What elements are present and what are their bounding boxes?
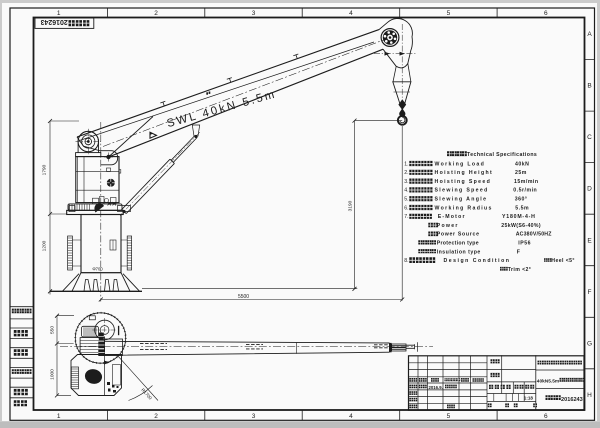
svg-text:3190: 3190 [348,200,354,211]
svg-text:1:18: 1:18 [524,395,534,400]
svg-text:4: 4 [349,10,353,17]
svg-text:2016243: 2016243 [40,18,67,25]
svg-text:8.: 8. [404,258,408,264]
svg-text:2016243: 2016243 [561,397,583,403]
svg-text:5: 5 [447,413,451,420]
svg-text:25m: 25m [515,170,527,176]
svg-text:4: 4 [349,413,353,420]
svg-text:Insulation type: Insulation type [437,249,481,255]
svg-text:E: E [587,237,592,244]
svg-text:Hoisting Height: Hoisting Height [435,170,494,176]
svg-text:Y180M-4-H: Y180M-4-H [502,214,536,220]
svg-text:B: B [587,83,591,90]
svg-text:F: F [517,249,520,255]
svg-text:5.: 5. [404,197,408,203]
svg-text:H: H [587,392,592,399]
svg-text:Slewing Angle: Slewing Angle [435,197,488,203]
svg-text:1.: 1. [404,161,408,167]
svg-text:Trim <2°: Trim <2° [508,267,532,273]
svg-text:Heel <5°: Heel <5° [551,258,575,264]
svg-text:Power: Power [437,223,459,229]
svg-text:4.: 4. [404,188,408,194]
svg-text:IP56: IP56 [518,241,531,247]
svg-text:1: 1 [57,413,61,420]
svg-text:1: 1 [57,10,61,17]
svg-text:3: 3 [252,413,256,420]
svg-text:Slewing Speed: Slewing Speed [435,188,489,194]
svg-text:40kN: 40kN [515,161,529,167]
svg-text:D: D [587,186,592,193]
svg-text:2016.9.: 2016.9. [429,385,443,390]
svg-text:3: 3 [252,10,256,17]
svg-text:Protection type: Protection type [437,241,479,247]
svg-text:1790: 1790 [42,164,48,175]
svg-text:5: 5 [447,10,451,17]
svg-text:2: 2 [154,413,158,420]
svg-text:3.: 3. [404,179,408,185]
svg-text:Design Condition: Design Condition [444,258,511,264]
svg-text:7.: 7. [404,214,408,220]
svg-text:25kW(S6-40%): 25kW(S6-40%) [501,223,541,229]
svg-text:5.5m: 5.5m [515,205,529,211]
svg-text:Power Source: Power Source [437,232,480,238]
svg-text:1200: 1200 [42,240,48,251]
svg-text:G: G [587,340,592,347]
svg-text:6: 6 [544,413,548,420]
svg-text:F: F [588,289,592,296]
svg-text:Technical Specifications: Technical Specifications [467,152,537,158]
svg-text:2.: 2. [404,170,408,176]
svg-text:6.: 6. [404,205,408,211]
svg-text:15m/min: 15m/min [514,179,539,185]
svg-text:Φ700: Φ700 [92,267,103,272]
svg-text:1000: 1000 [50,369,56,380]
svg-text:5500: 5500 [238,294,249,300]
svg-text:40kN5.5m: 40kN5.5m [537,378,559,384]
svg-text:550: 550 [50,326,56,334]
svg-text:Hoisting Speed: Hoisting Speed [435,179,492,185]
svg-text:0.5r/min: 0.5r/min [513,188,537,194]
svg-text:C: C [587,134,592,141]
svg-text:A: A [587,31,592,38]
svg-text:360°: 360° [515,197,528,203]
svg-text:6: 6 [544,10,548,17]
svg-text:AC380V/50HZ: AC380V/50HZ [516,232,553,238]
svg-text:E-Motor: E-Motor [438,214,466,220]
svg-text:Working Radius: Working Radius [435,205,493,211]
svg-text:2: 2 [154,10,158,17]
svg-text:Working Load: Working Load [435,161,486,167]
